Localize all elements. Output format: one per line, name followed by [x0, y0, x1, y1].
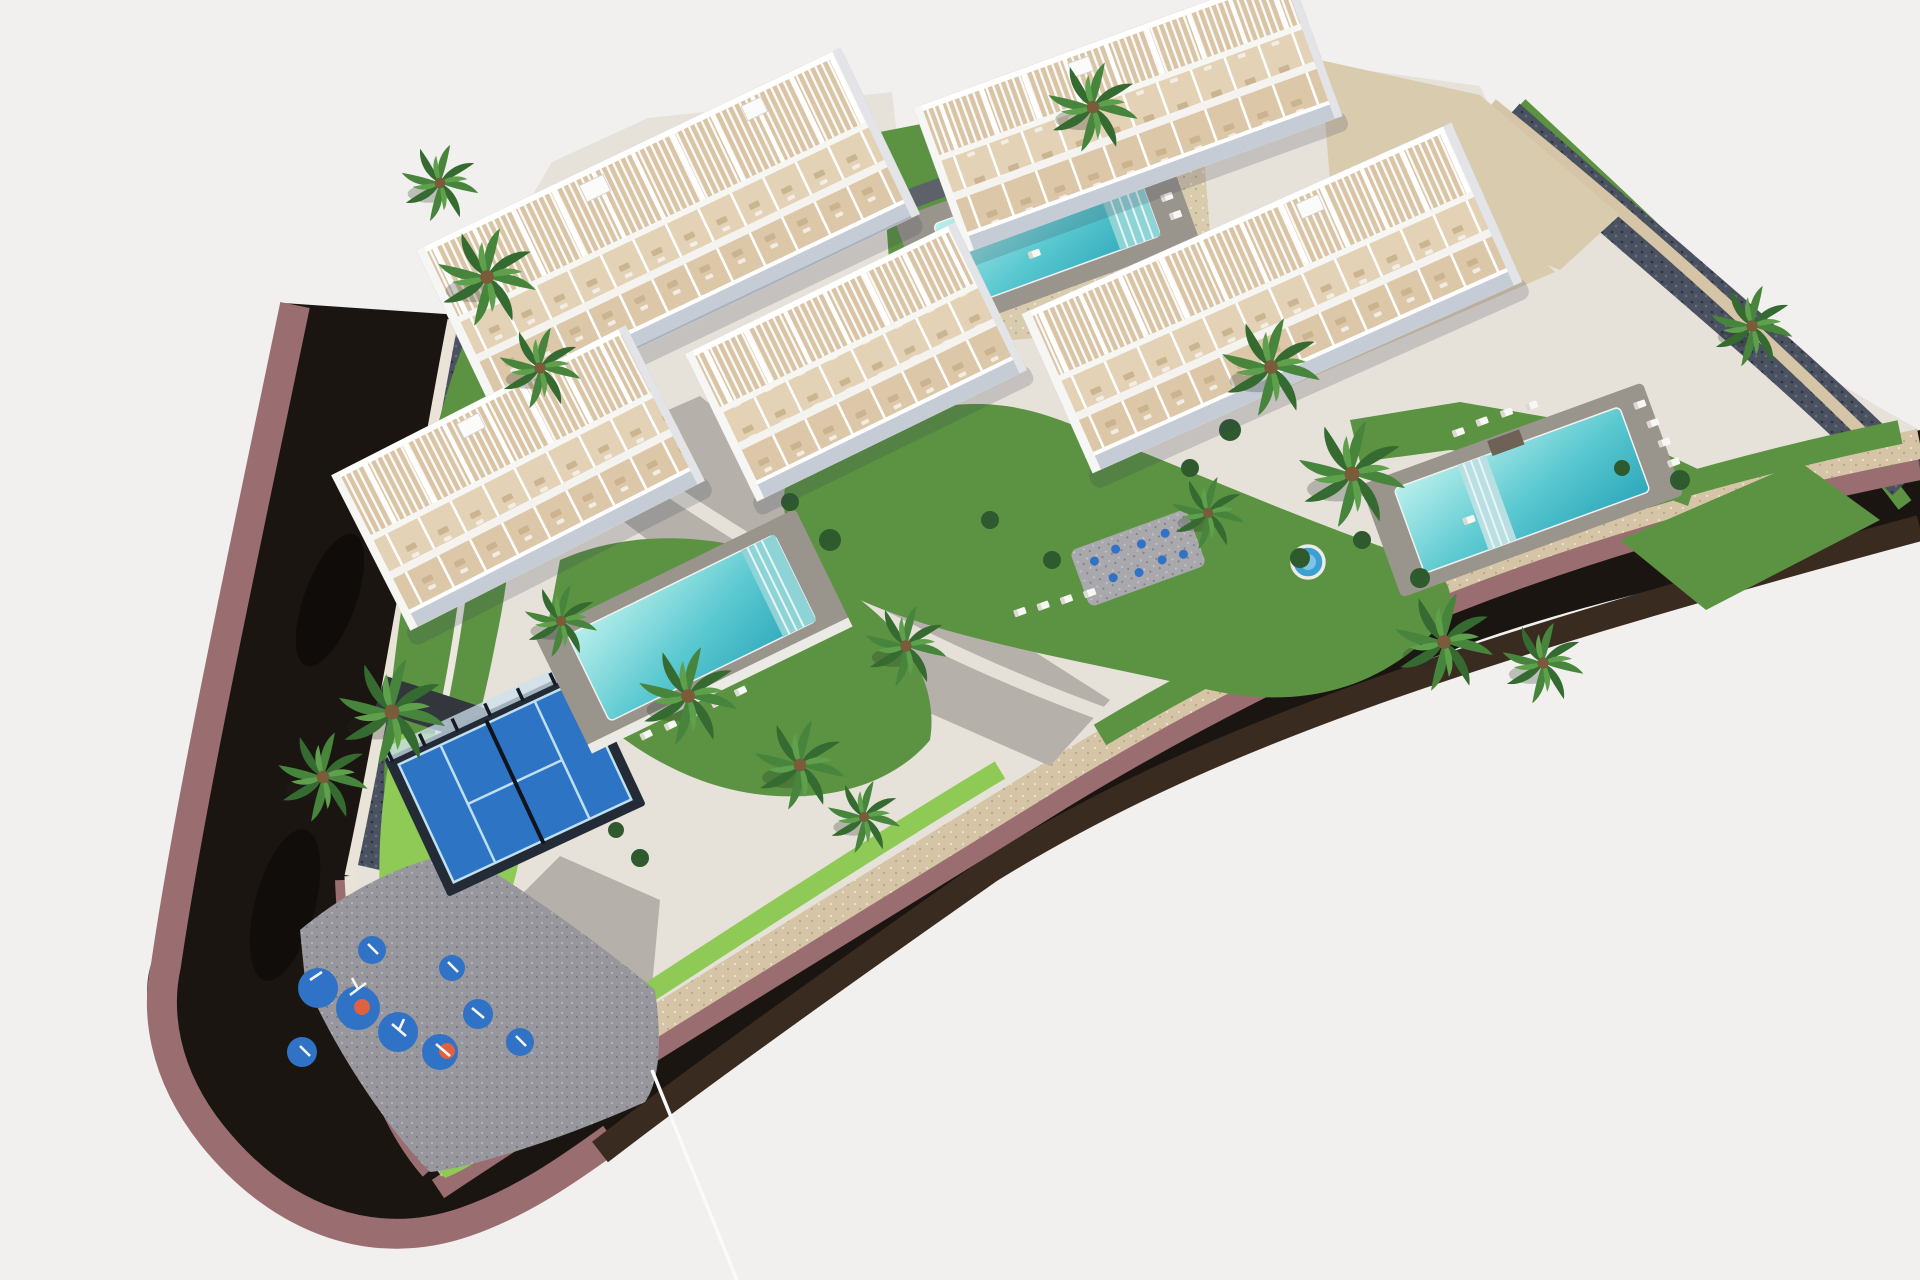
site-plan-rendering [0, 0, 1920, 1280]
screenshot [0, 0, 1920, 1280]
